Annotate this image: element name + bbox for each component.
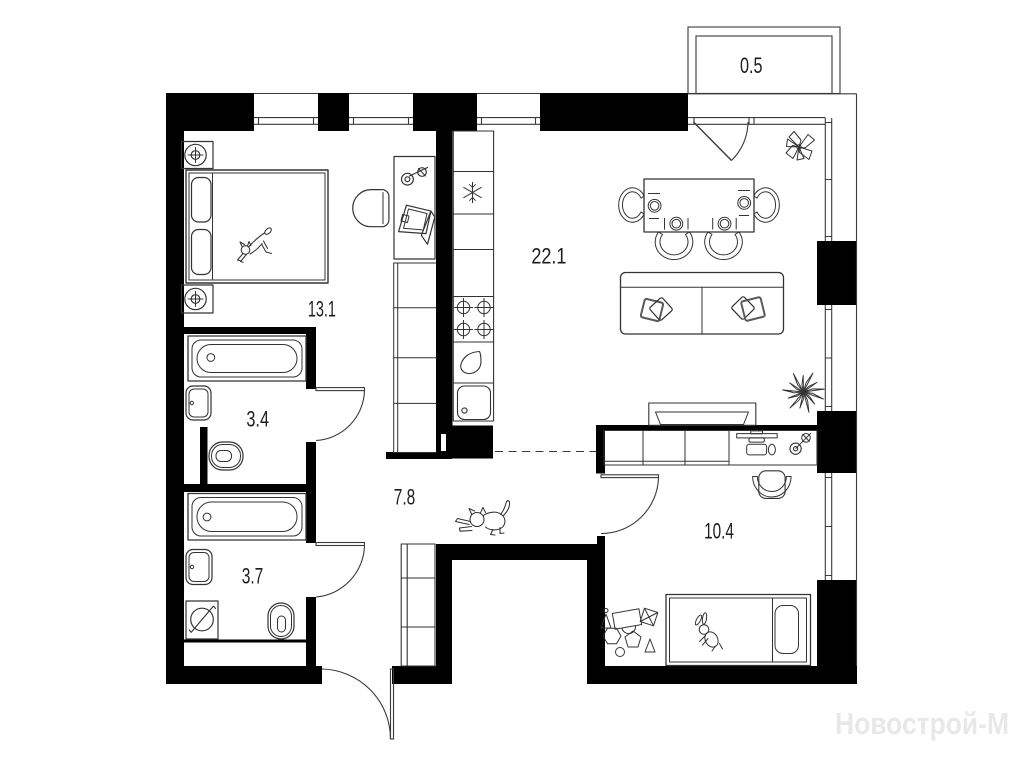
svg-text:7.8: 7.8: [394, 485, 416, 510]
svg-text:13.1: 13.1: [308, 297, 336, 322]
svg-text:3.7: 3.7: [242, 564, 264, 589]
svg-text:10.4: 10.4: [704, 519, 734, 544]
svg-text:Новострой-М: Новострой-М: [835, 706, 1009, 741]
svg-text:3.4: 3.4: [246, 407, 269, 432]
svg-text:0.5: 0.5: [740, 53, 763, 78]
svg-text:22.1: 22.1: [531, 244, 566, 269]
